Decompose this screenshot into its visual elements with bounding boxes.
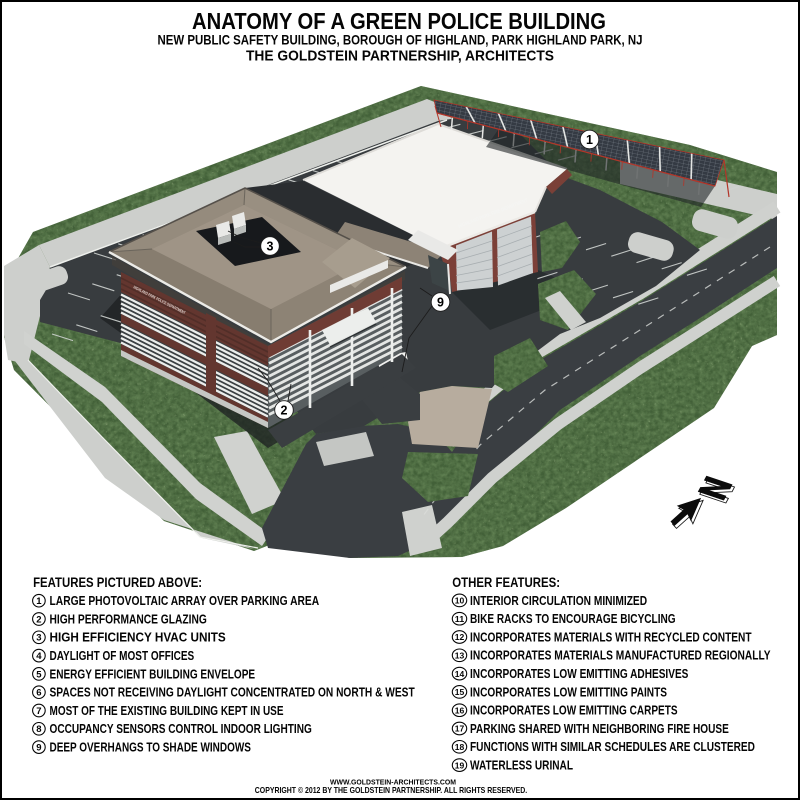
svg-text:BIKE RACKS TO ENCOURAGE BICYCL: BIKE RACKS TO ENCOURAGE BICYCLING xyxy=(470,612,676,626)
svg-text:12: 12 xyxy=(455,632,465,642)
svg-text:ANATOMY OF A GREEN POLICE BUIL: ANATOMY OF A GREEN POLICE BUILDING xyxy=(192,8,606,34)
svg-text:18: 18 xyxy=(455,742,465,752)
svg-text:3: 3 xyxy=(267,240,274,254)
svg-text:4: 4 xyxy=(36,651,42,662)
svg-text:NEW PUBLIC SAFETY BUILDING, BO: NEW PUBLIC SAFETY BUILDING, BOROUGH OF H… xyxy=(158,32,643,47)
svg-text:FUNCTIONS WITH SIMILAR SCHEDUL: FUNCTIONS WITH SIMILAR SCHEDULES ARE CLU… xyxy=(470,740,755,754)
svg-text:9: 9 xyxy=(437,296,444,310)
svg-text:WATERLESS URINAL: WATERLESS URINAL xyxy=(470,759,573,773)
svg-text:OTHER FEATURES:: OTHER FEATURES: xyxy=(452,575,560,590)
svg-text:2: 2 xyxy=(281,404,288,418)
svg-text:14: 14 xyxy=(455,669,465,679)
svg-text:INCORPORATES MATERIALS WITH RE: INCORPORATES MATERIALS WITH RECYCLED CON… xyxy=(470,630,752,644)
svg-text:15: 15 xyxy=(455,687,465,697)
svg-text:INCORPORATES LOW EMITTING PAIN: INCORPORATES LOW EMITTING PAINTS xyxy=(470,685,667,699)
svg-text:10: 10 xyxy=(455,596,465,606)
svg-text:SPACES NOT RECEIVING DAYLIGHT: SPACES NOT RECEIVING DAYLIGHT CONCENTRAT… xyxy=(50,686,415,700)
svg-text:OCCUPANCY SENSORS CONTROL INDO: OCCUPANCY SENSORS CONTROL INDOOR LIGHTIN… xyxy=(50,722,312,736)
svg-text:5: 5 xyxy=(36,669,42,680)
svg-text:COPYRIGHT © 2012 BY THE GOLDST: COPYRIGHT © 2012 BY THE GOLDSTEIN PARTNE… xyxy=(255,786,527,795)
svg-text:HIGH EFFICIENCY HVAC UNITS: HIGH EFFICIENCY HVAC UNITS xyxy=(50,631,226,645)
svg-text:17: 17 xyxy=(455,724,465,734)
svg-text:INTERIOR CIRCULATION MINIMIZED: INTERIOR CIRCULATION MINIMIZED xyxy=(470,594,647,608)
svg-text:1: 1 xyxy=(586,133,593,147)
svg-text:INCORPORATES LOW EMITTING CARP: INCORPORATES LOW EMITTING CARPETS xyxy=(470,704,678,718)
svg-text:DEEP OVERHANGS TO SHADE WINDOW: DEEP OVERHANGS TO SHADE WINDOWS xyxy=(50,741,251,755)
svg-text:HIGH PERFORMANCE GLAZING: HIGH PERFORMANCE GLAZING xyxy=(50,612,207,626)
svg-text:6: 6 xyxy=(36,688,41,699)
svg-text:13: 13 xyxy=(455,651,465,661)
svg-text:MOST OF THE EXISTING BUILDING: MOST OF THE EXISTING BUILDING KEPT IN US… xyxy=(50,704,284,718)
svg-text:3: 3 xyxy=(36,633,41,644)
svg-text:INCORPORATES MATERIALS MANUFAC: INCORPORATES MATERIALS MANUFACTURED REGI… xyxy=(470,649,771,663)
svg-text:PARKING SHARED WITH NEIGHBORIN: PARKING SHARED WITH NEIGHBORING FIRE HOU… xyxy=(470,722,729,736)
svg-text:DAYLIGHT OF MOST OFFICES: DAYLIGHT OF MOST OFFICES xyxy=(50,649,195,663)
svg-text:FEATURES PICTURED ABOVE:: FEATURES PICTURED ABOVE: xyxy=(33,575,202,590)
svg-text:1: 1 xyxy=(36,596,42,607)
svg-text:8: 8 xyxy=(36,724,41,735)
svg-text:INCORPORATES LOW EMITTING ADHE: INCORPORATES LOW EMITTING ADHESIVES xyxy=(470,667,688,681)
svg-text:11: 11 xyxy=(455,614,465,624)
svg-text:ENERGY EFFICIENT BUILDING ENVE: ENERGY EFFICIENT BUILDING ENVELOPE xyxy=(50,667,256,681)
svg-text:LARGE PHOTOVOLTAIC ARRAY OVER: LARGE PHOTOVOLTAIC ARRAY OVER PARKING AR… xyxy=(50,594,320,608)
svg-text:9: 9 xyxy=(36,743,41,754)
svg-text:7: 7 xyxy=(36,706,41,717)
svg-text:THE GOLDSTEIN PARTNERSHIP, ARC: THE GOLDSTEIN PARTNERSHIP, ARCHITECTS xyxy=(246,47,554,64)
svg-text:19: 19 xyxy=(455,760,465,770)
svg-text:2: 2 xyxy=(36,614,41,625)
svg-text:16: 16 xyxy=(455,705,465,715)
